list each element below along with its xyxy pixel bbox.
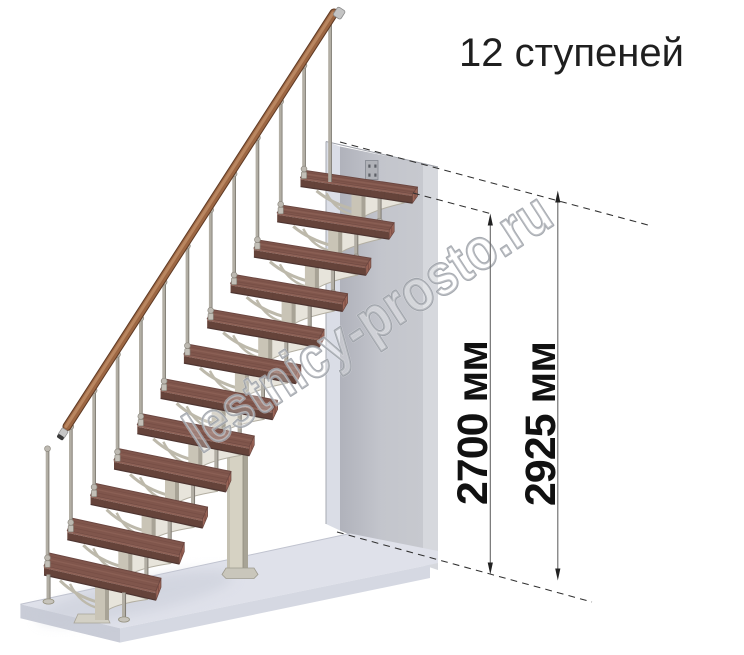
svg-text:2700 мм: 2700 мм [449,341,497,505]
svg-text:12 ступеней: 12 ступеней [459,31,684,75]
svg-text:2925 мм: 2925 мм [517,342,565,506]
